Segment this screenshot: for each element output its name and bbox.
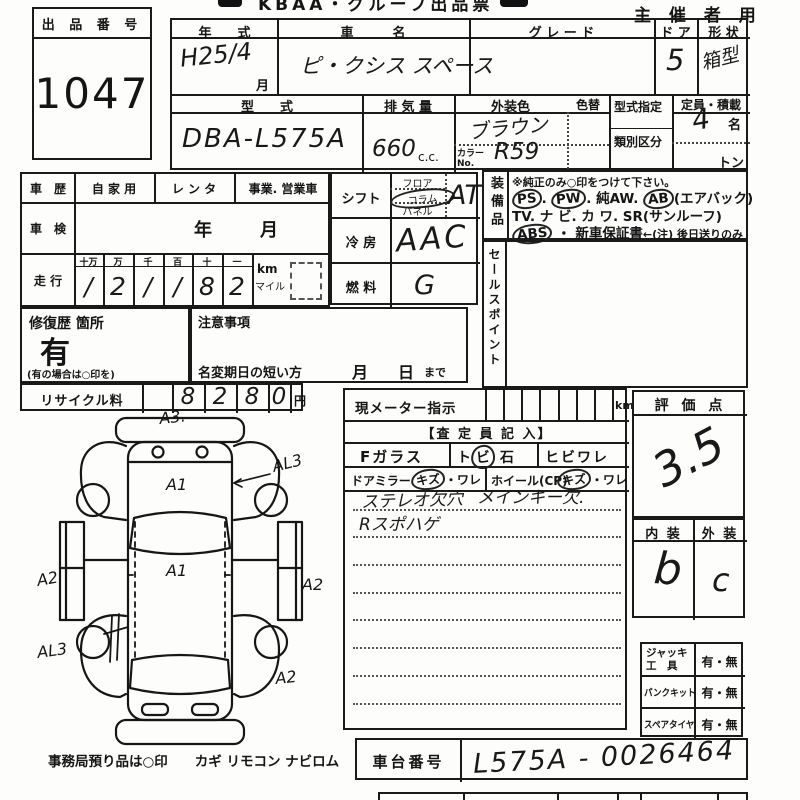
color-change-label: 色替 [567, 96, 609, 113]
displacement-unit: c.c. [418, 150, 439, 164]
car-rear-window [130, 655, 230, 694]
mileage-col-1: 一 [222, 255, 252, 268]
car-door-panel-left [60, 522, 84, 620]
door-mirror-scratch-rest: ・ワレ [445, 473, 481, 487]
header-stamp-right [500, 0, 528, 7]
name-change-day: 日 [398, 359, 414, 383]
mileage-col-100k: 十万 [74, 255, 103, 268]
car-tail-light-left [142, 704, 168, 715]
car-wiper-right [197, 447, 208, 458]
header-stamp-left [218, 0, 242, 7]
chassis-number-value: L575A - 0026464 [472, 737, 735, 778]
car-wiper-left [153, 447, 164, 458]
displacement-value: 660 [372, 138, 416, 161]
model-value: DBA-L575A [182, 126, 347, 152]
mileage-unit-km: km [257, 262, 277, 276]
name-value: ピ・クシス スペース [300, 56, 493, 77]
door-mirror-damage: キズ・ワレ [411, 469, 481, 490]
inspection-month: 月 [260, 216, 278, 242]
door-mirror-scratch-circled: キズ [410, 468, 446, 492]
annotation-a3: A3. [157, 410, 186, 428]
name-change-label: 名変期日の短い方 [198, 362, 302, 381]
meter-label: 現メーター指示 [355, 397, 457, 417]
cooling-value: AAC [395, 221, 470, 257]
year-label: 年 式 [172, 22, 277, 41]
vehicle-table: 年 式 車 名 グ レ ー ド ド ア 形 状 H25/4 月 ピ・クシス スペ… [170, 18, 748, 170]
exterior-label: 外 装 [693, 523, 747, 542]
mileage-col-10k: 万 [103, 255, 133, 268]
color-no-label: カラーNo. [457, 150, 491, 170]
history-rental: レ ン タ [154, 180, 234, 197]
annotation-a1-roof: A1 [165, 561, 187, 580]
car-diagram: A3. AL3 A1 A1 A2 A2 AL3 A2 [36, 410, 336, 748]
repair-history-note: (有の場合は○印を) [27, 366, 115, 381]
inspection-year: 年 [194, 216, 212, 242]
equipment-box: 装備品 ※純正のみ○印をつけて下さい。 PS. PW. 純AW. AB(エアバッ… [482, 170, 748, 240]
equipment-label: 装備品 [486, 176, 505, 230]
bottom-partial-table [378, 792, 748, 800]
annotation-al3-bottom: AL3 [36, 639, 68, 662]
crack-label: ヒビワレ [545, 447, 609, 467]
shift-option-panel: パネル [390, 203, 445, 218]
history-label: 車 歴 [22, 180, 74, 197]
mileage-digit-0: / [74, 274, 103, 299]
jack-tools-value: 有・無 [694, 653, 745, 670]
interior-label: 内 装 [634, 523, 693, 542]
recycle-digit-2: 8 [236, 386, 268, 409]
model-designation-label: 型式指定 [614, 98, 662, 115]
color-no-value: R59 [494, 141, 539, 164]
model-label: 型 式 [172, 96, 362, 115]
name-label: 車 名 [277, 22, 469, 41]
shape-value: 箱型 [699, 46, 740, 74]
interior-grade: b [652, 547, 683, 593]
mileage-digit-1: 2 [103, 274, 133, 299]
shape-label: 形 状 [697, 22, 750, 41]
puncture-kit-value: 有・無 [694, 684, 745, 701]
car-tail-light-right [192, 704, 218, 715]
grade-label: グ レ ー ド [469, 22, 654, 41]
door-mirror-label: ドアミラー [351, 472, 411, 489]
name-change-month: 月 [352, 359, 368, 383]
mileage-digit-2: / [133, 274, 163, 299]
recycle-digit-3: 0 [268, 386, 290, 409]
capacity-label: 定員・積載 [672, 96, 750, 113]
mileage-unit-checkbox [290, 262, 322, 300]
assessor-note-1b: メインキー欠. [477, 490, 584, 507]
shift-table: シフト フロア コラム パネル AT 冷 房 AAC 燃 料 G [330, 172, 478, 305]
lot-number-box: 出 品 番 号 1047 [32, 7, 152, 160]
annotation-a2-right: A2 [301, 575, 323, 594]
recycle-unit: 円 [294, 392, 306, 409]
stone-chip-circled: ビ [470, 444, 496, 470]
annotation-a2-left: A2 [36, 568, 59, 591]
office-deposit-note: 事務局預り品は○印 カギ リモコン ナビロム [48, 750, 339, 770]
wheel-scratch-rest: ・ワレ [591, 473, 627, 487]
sales-point-label: セールスポイント [486, 248, 503, 368]
caution-box: 注意事項 名変期日の短い方 月 日 まで [190, 307, 468, 383]
caution-label: 注意事項 [198, 312, 250, 331]
history-private: 自 家 用 [74, 180, 154, 197]
car-fender-front-left [81, 442, 126, 520]
recycle-digit-1: 2 [204, 386, 236, 409]
history-commercial: 事業. 営業車 [234, 180, 332, 197]
cooling-label: 冷 房 [332, 232, 390, 251]
stone-chip-prefix: ト [457, 450, 471, 466]
car-windshield [130, 512, 230, 554]
car-wheel-rear-right [255, 626, 287, 658]
stone-chip-suffix: 石 [500, 450, 514, 466]
mileage-col-100: 百 [163, 255, 192, 268]
annotation-a1-hood: A1 [165, 475, 187, 494]
spare-tire-label: スペアタイヤ [644, 717, 694, 731]
body-color-label: 外装色 [454, 96, 567, 115]
mileage-digit-4: 8 [192, 274, 222, 299]
door-value: 5 [666, 46, 684, 75]
chassis-number-box: 車台番号 L575A - 0026464 [355, 738, 748, 780]
recycle-fee-box: リサイクル料 8 2 8 0 円 [20, 383, 303, 411]
annotation-a2-bottom: A2 [273, 667, 297, 688]
recycle-digit-0: 8 [172, 386, 204, 409]
recycle-fee-label: リサイクル料 [22, 390, 142, 409]
auction-sheet: KBAA・グループ出品票 主 催 者 用 出 品 番 号 1047 年 式 車 … [0, 0, 800, 800]
month-suffix: 月 [256, 75, 269, 94]
jack-tools-label: ジャッキ 工 具 [646, 647, 687, 673]
shift-label: シフト [332, 188, 390, 207]
spare-tire-value: 有・無 [694, 716, 745, 733]
mileage-digit-3: / [163, 274, 192, 299]
year-value: H25/4 [179, 39, 253, 70]
interior-exterior-box: 内 装 外 装 b c [632, 518, 745, 618]
chassis-number-label: 車台番号 [357, 751, 460, 772]
mileage-label: 走 行 [22, 272, 74, 289]
mileage-unit-mile: マイル [255, 278, 285, 293]
fuel-label: 燃 料 [332, 277, 390, 296]
evaluation-score: 3.5 [645, 420, 731, 495]
wheel-damage: キズ・ワレ [557, 469, 627, 490]
body-color-value: ブラウン [467, 114, 549, 142]
displacement-label: 排 気 量 [362, 96, 454, 115]
accessories-table: ジャッキ 工 具 有・無 パンクキット 有・無 スペアタイヤ 有・無 [640, 642, 743, 737]
meter-unit: km [615, 399, 634, 412]
mileage-col-1k: 千 [133, 255, 163, 268]
classification-label: 類別区分 [614, 133, 662, 150]
lot-number: 1047 [34, 69, 150, 118]
car-wheel-front-right [255, 484, 287, 516]
exterior-grade: c [712, 564, 730, 596]
car-door-panel-right [278, 522, 302, 620]
repair-history-box: 修復歴 箇所 有 (有の場合は○印を) [20, 307, 190, 383]
assessor-note-2: Rスポハゲ [359, 517, 439, 534]
load-unit: トン [718, 152, 744, 171]
shift-value: AT [448, 182, 481, 209]
inspection-label: 車 検 [22, 220, 74, 237]
assessor-title: 【査 定 員 記 入】 [345, 423, 629, 442]
mileage-digit-5: 2 [222, 274, 252, 299]
car-fender-rear-right [234, 615, 279, 697]
door-label: ド ア [654, 22, 697, 41]
puncture-kit-label: パンクキット [644, 685, 696, 699]
lot-number-label: 出 品 番 号 [34, 9, 150, 39]
mileage-col-10: 十 [192, 255, 222, 268]
front-glass-label: Fガラス [360, 446, 423, 467]
sheet-title: KBAA・グループ出品票 [258, 0, 493, 15]
name-change-until: まで [424, 364, 446, 380]
assessor-table: 現メーター指示 km 【査 定 員 記 入】 Fガラス トビ 石 ヒビワレ ドア… [343, 388, 627, 730]
evaluation-label: 評 価 点 [634, 395, 747, 415]
diagram-annotations: A3. AL3 A1 A1 A2 A2 AL3 A2 [36, 410, 323, 688]
capacity-unit: 名 [728, 114, 741, 133]
evaluation-box: 評 価 点 3.5 [632, 390, 745, 518]
car-rear-bumper [116, 720, 244, 744]
sales-point-box: セールスポイント [482, 240, 748, 388]
history-table: 車 歴 自 家 用 レ ン タ 事業. 営業車 車 検 年 月 走 行 十万 万… [20, 172, 330, 307]
fuel-value: G [414, 272, 435, 299]
